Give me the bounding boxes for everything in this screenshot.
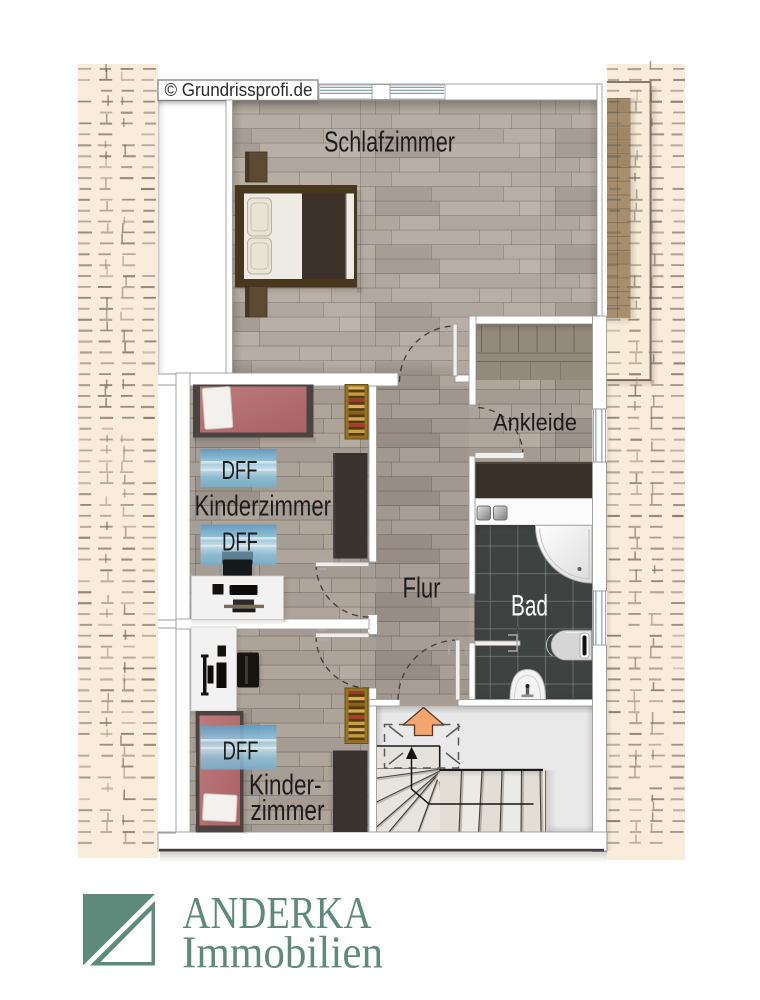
svg-text:DFF: DFF	[223, 736, 259, 766]
svg-text:zimmer: zimmer	[251, 795, 325, 827]
svg-text:DFF: DFF	[222, 455, 258, 485]
svg-text:Schlafzimmer: Schlafzimmer	[324, 127, 455, 159]
svg-text:Bad: Bad	[511, 590, 548, 623]
svg-text:© Grundrissprofi.de: © Grundrissprofi.de	[165, 80, 313, 100]
svg-text:Kinderzimmer: Kinderzimmer	[195, 491, 332, 523]
svg-text:Immobilien: Immobilien	[182, 928, 383, 978]
svg-text:Flur: Flur	[403, 573, 441, 605]
svg-text:Ankleide: Ankleide	[493, 410, 577, 437]
